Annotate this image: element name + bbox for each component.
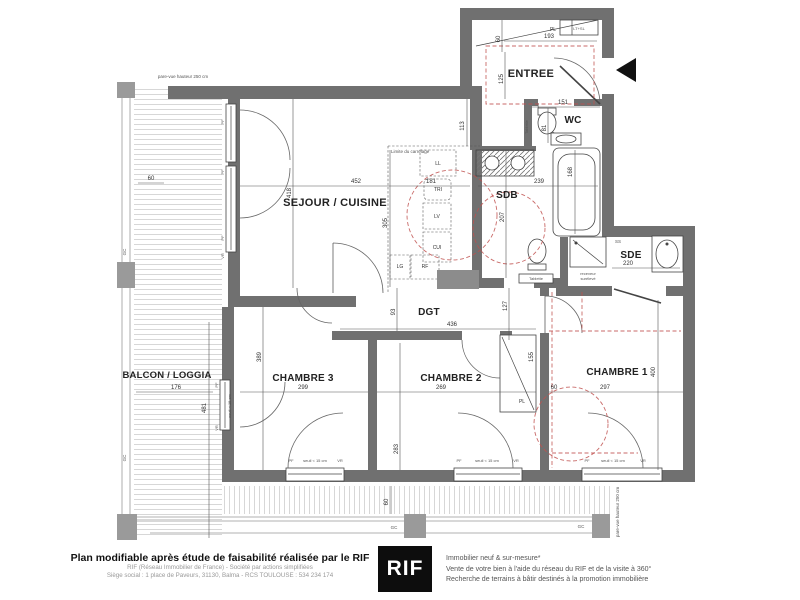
label-ll: LL — [435, 161, 441, 167]
dim-wc-w: 151 — [558, 100, 569, 106]
label-pf-ch3: PF — [288, 458, 294, 463]
label-pf-4: PF — [214, 382, 219, 388]
label-seuil-ch3-left: seuil < 15 cm — [227, 393, 232, 417]
floor-plan-page: SEJOUR / CUISINE ENTREE WC SDB SDE DGT B… — [0, 0, 800, 600]
label-tri: TRI — [434, 187, 442, 193]
label-rf: RF — [422, 264, 429, 270]
room-label-ch3: CHAMBRE 3 — [272, 373, 333, 384]
label-vr-ch1: VR — [640, 458, 646, 463]
dim-wc-h: 81 — [542, 124, 548, 131]
label-vr-2: VR — [214, 425, 219, 431]
footer-service-line-1: Immobilier neuf & sur-mesure* — [446, 554, 651, 565]
dim-dgt-h: 93 — [391, 308, 397, 315]
dim-dgt-w: 436 — [447, 322, 458, 328]
label-lg: LG — [397, 264, 404, 270]
room-label-balcon: BALCON / LOGGIA — [122, 370, 211, 381]
label-ltsl: LT+SL — [573, 26, 585, 31]
label-gc-bottom-1: GC — [391, 525, 399, 530]
sdb-sink — [485, 156, 499, 170]
room-label-ch1: CHAMBRE 1 — [586, 367, 647, 378]
dim-sdb-w: 239 — [534, 179, 545, 185]
label-seuil-ch2: seuil < 15 cm — [475, 458, 499, 463]
label-seuil-ch1: seuil < 15 cm — [601, 458, 625, 463]
label-limite-carrelage: Limite du carrelage — [391, 149, 430, 154]
label-pf-1: PF — [220, 119, 225, 125]
room-label-sde: SDE — [620, 250, 641, 261]
dim-balcon-w: 176 — [171, 385, 182, 391]
label-ss: SS — [615, 239, 621, 244]
walls — [168, 8, 695, 482]
footer-left-block: Plan modifiable après étude de faisabili… — [70, 552, 370, 581]
dim-ch2-h: 283 — [394, 443, 400, 454]
label-pare-vue-top: pare-vue hauteur 250 cm — [158, 74, 209, 79]
room-label-sdb: SDB — [496, 190, 518, 201]
label-pf-ch2: PF — [456, 458, 462, 463]
dim-sejour-w: 452 — [351, 179, 362, 185]
label-pl2: PL — [519, 399, 525, 405]
label-gc-left-2: GC — [122, 454, 127, 462]
dim-127: 127 — [503, 300, 509, 311]
dim-305: 305 — [383, 217, 389, 228]
room-label-entree: ENTREE — [508, 68, 554, 80]
label-gc-bottom-2: GC — [578, 524, 586, 529]
room-label-ch2: CHAMBRE 2 — [420, 373, 481, 384]
rif-logo-text: RIF — [387, 557, 424, 581]
floor-plan-drawing: SEJOUR / CUISINE ENTREE WC SDB SDE DGT B… — [0, 0, 800, 545]
room-label-wc: WC — [564, 115, 581, 126]
dim-sejour-h: 418 — [287, 187, 293, 198]
label-seuil-ch3: seuil < 15 cm — [303, 458, 327, 463]
label-lv: LV — [434, 214, 440, 220]
dim-entree-h: 125 — [499, 73, 505, 84]
label-pare-vue-right: pare-vue hauteur 250 cm — [615, 487, 620, 538]
dim-sdb-h: 207 — [500, 211, 506, 222]
footer-company-line: RIF (Réseau Immobilier de France) - Soci… — [70, 564, 370, 572]
label-vr-1: VR — [220, 253, 225, 259]
dim-113: 113 — [460, 121, 466, 131]
sde-door-leaf — [614, 289, 661, 303]
kitchen-counter-block — [437, 270, 479, 289]
dim-entree-w: 193 — [544, 34, 555, 40]
label-pf-3: PF — [220, 235, 225, 241]
dim-bain: 168 — [568, 166, 574, 177]
room-label-dgt: DGT — [418, 307, 440, 318]
footer-address-line: Siège social : 1 place de Paveurs, 31130… — [70, 572, 370, 580]
sdb-toilet — [528, 239, 546, 263]
label-cui: CUI — [433, 245, 442, 251]
dim-ch3-h: 389 — [257, 351, 263, 362]
label-tablette-sdb: Tablette — [529, 276, 544, 281]
dim-balcon-h: 481 — [202, 402, 208, 413]
sdb-sink — [511, 156, 525, 170]
room-label-sejour: SEJOUR / CUISINE — [283, 197, 387, 209]
footer-service-line-2: Vente de votre bien à l'aide du réseau d… — [446, 565, 651, 576]
label-gc-left-1: GC — [122, 248, 127, 256]
label-vr-ch2: VR — [513, 458, 519, 463]
label-vr-ch3: VR — [337, 458, 343, 463]
dim-ch2-w: 269 — [436, 385, 447, 391]
footer: Plan modifiable après étude de faisabili… — [0, 545, 800, 600]
dim-terrasse-60: 60 — [384, 498, 390, 505]
label-tablette-wc: Tablette — [524, 119, 529, 134]
label-receveur-2: surélevé — [580, 276, 596, 281]
footer-service-line-3: Recherche de terrains à bâtir destinés à… — [446, 575, 651, 586]
label-pf-ch1: PF — [584, 458, 590, 463]
dim-sde-w: 220 — [623, 261, 634, 267]
dim-pl-h: 155 — [529, 351, 535, 362]
entrance-arrow-icon — [616, 58, 636, 82]
footer-right-block: Immobilier neuf & sur-mesure* Vente de v… — [446, 554, 651, 586]
dim-balcon-60: 60 — [148, 176, 155, 182]
footer-title: Plan modifiable après étude de faisabili… — [70, 552, 370, 564]
dim-ch3-w: 299 — [298, 385, 309, 391]
rif-logo: RIF — [378, 546, 432, 592]
label-pl: PL — [550, 27, 556, 33]
dim-181: 181 — [426, 179, 437, 185]
dim-pl-w: 60 — [551, 385, 558, 391]
dim-ch1-w: 297 — [600, 385, 611, 391]
label-pf-2: PF — [220, 169, 225, 175]
dim-entree-60: 60 — [496, 35, 502, 42]
dim-ch1-h: 400 — [651, 366, 657, 377]
